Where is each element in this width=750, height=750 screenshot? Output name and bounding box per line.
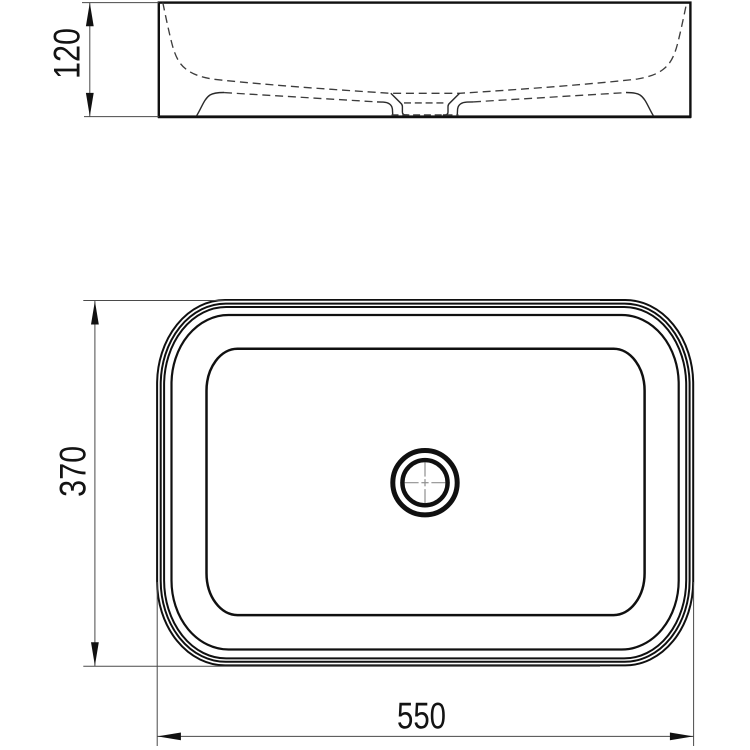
svg-text:550: 550 <box>397 695 446 736</box>
svg-text:370: 370 <box>52 446 93 497</box>
svg-text:120: 120 <box>47 28 88 79</box>
